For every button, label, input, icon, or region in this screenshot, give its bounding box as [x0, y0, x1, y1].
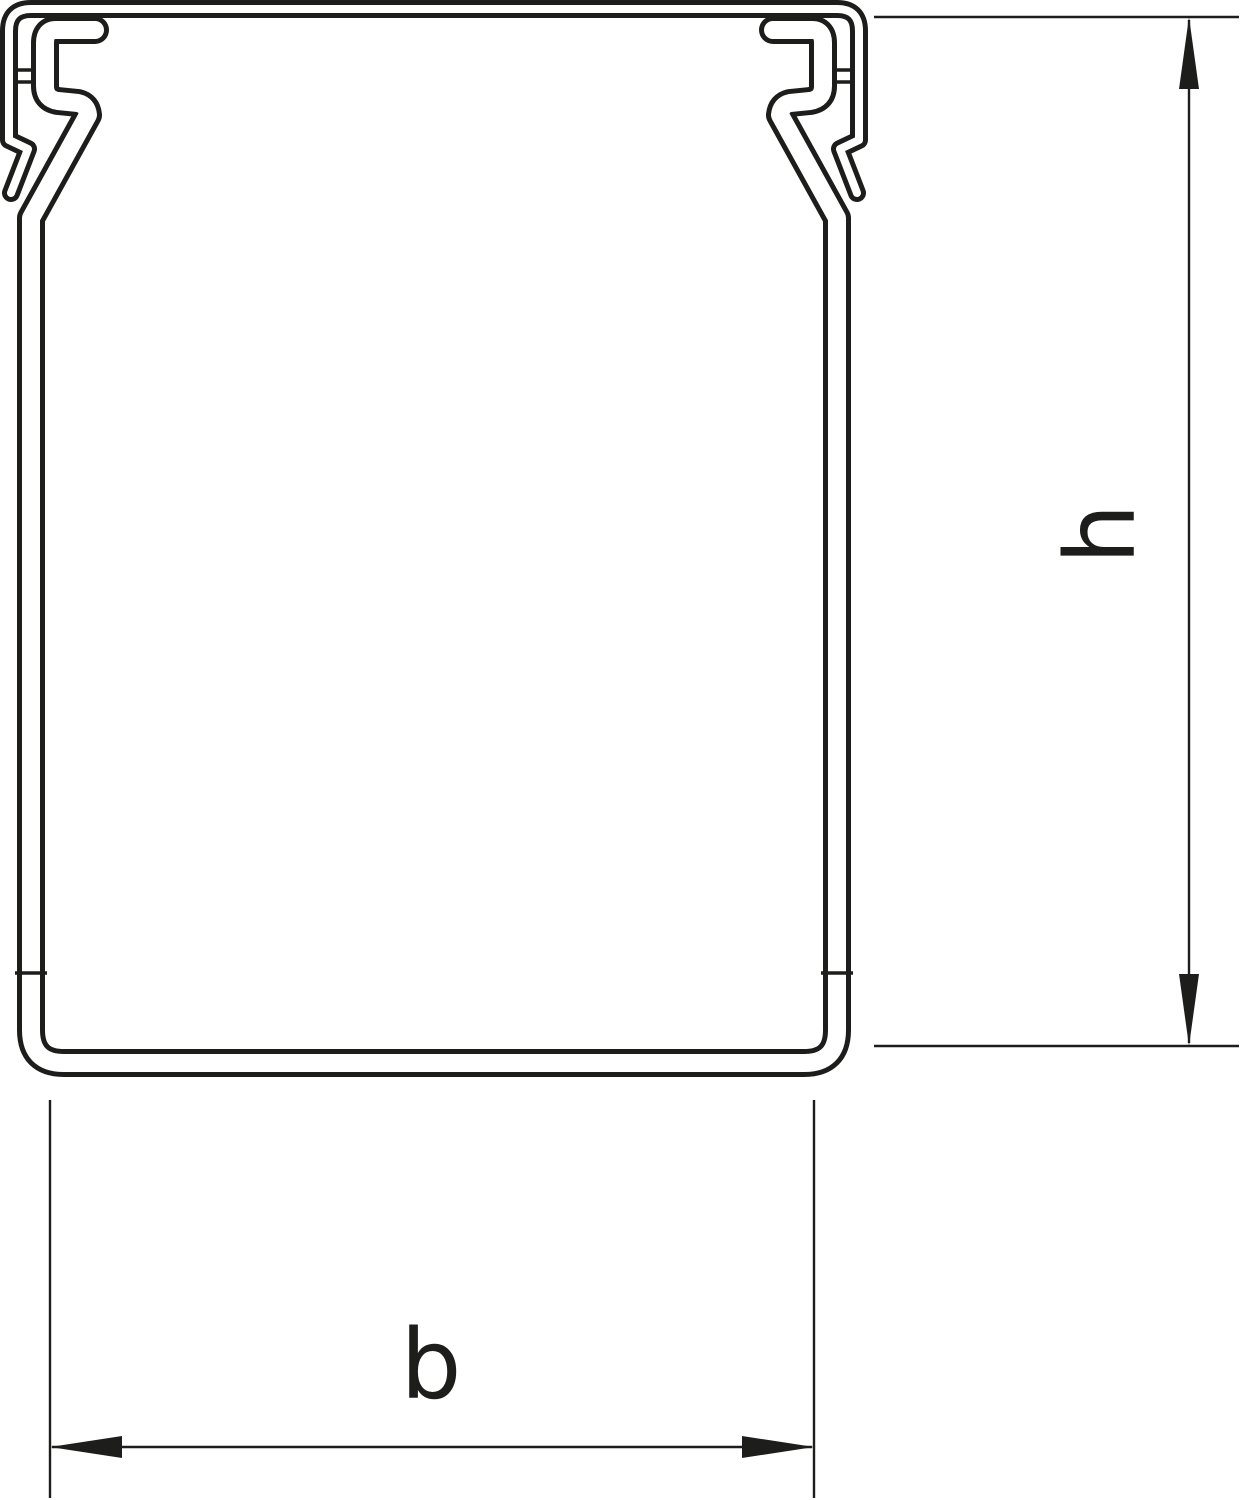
- arrow-right-icon: [742, 1436, 814, 1458]
- cover-outline: [9, 9, 859, 193]
- duct-body-outline: [31, 30, 837, 1063]
- height-dimension: h: [874, 17, 1239, 1046]
- duct-profile: [9, 9, 859, 1063]
- arrow-down-icon: [1179, 974, 1199, 1046]
- duct-body-hollow: [31, 30, 837, 1063]
- arrow-up-icon: [1179, 17, 1199, 89]
- cover-hollow: [9, 9, 859, 193]
- width-label: b: [401, 1309, 462, 1421]
- technical-drawing-page: h b: [0, 0, 1241, 1500]
- duct-cross-section-drawing: h b: [0, 0, 1241, 1500]
- width-dimension: b: [50, 1100, 814, 1498]
- arrow-left-icon: [50, 1436, 122, 1458]
- height-label: h: [1045, 504, 1157, 565]
